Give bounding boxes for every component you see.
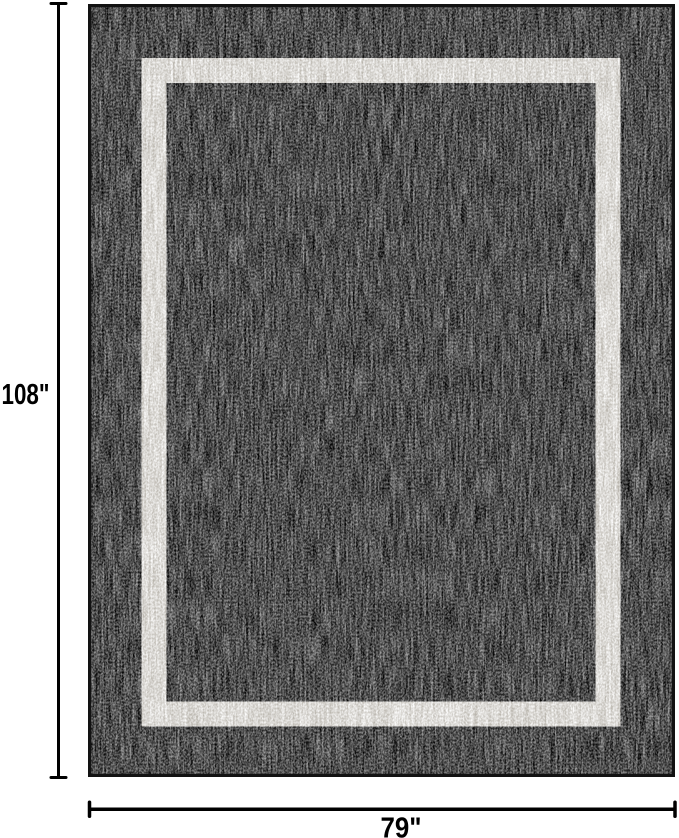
svg-text:79": 79"	[381, 812, 422, 838]
svg-text:108": 108"	[2, 379, 50, 411]
